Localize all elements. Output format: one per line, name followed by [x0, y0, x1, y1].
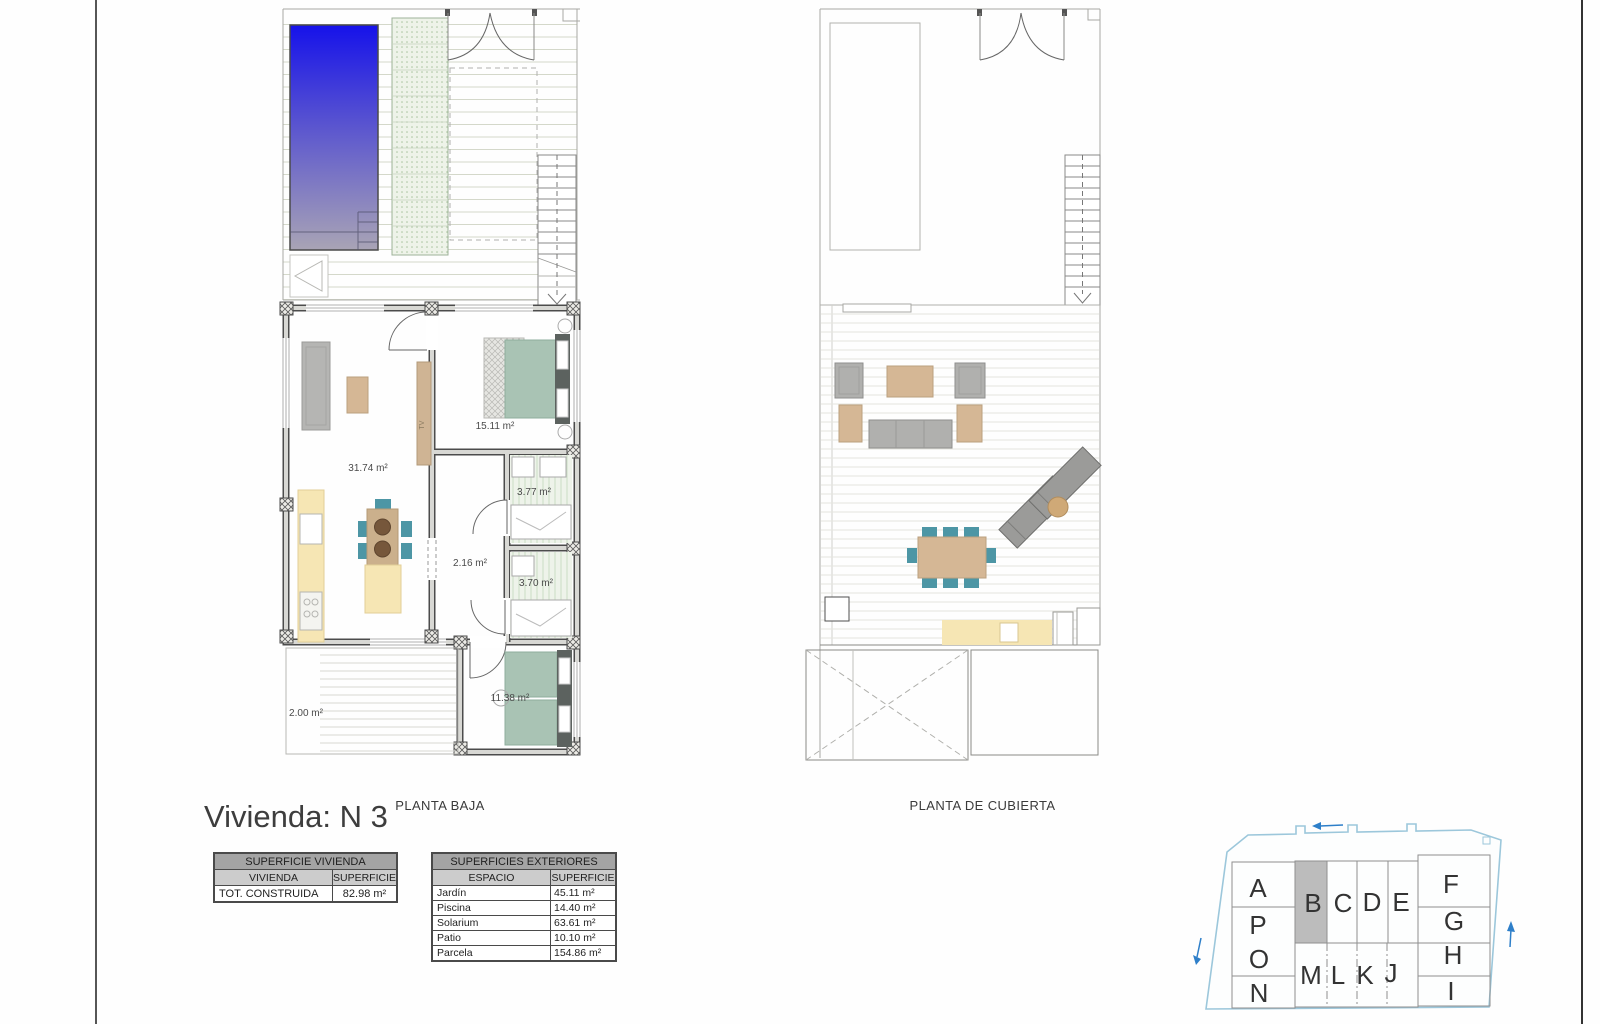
- sofa: [302, 342, 330, 430]
- row-label: Parcela: [433, 946, 551, 960]
- room-area-bedroom-main: 15.11 m²: [476, 421, 515, 432]
- side-table: [957, 405, 982, 442]
- light-symbol: [558, 425, 572, 439]
- site-unit-B: B: [1304, 888, 1321, 918]
- toilet: [540, 457, 566, 477]
- sink: [512, 457, 534, 477]
- single-bed: [505, 652, 557, 697]
- site-unit-I: I: [1447, 976, 1454, 1006]
- coffee-table: [887, 366, 933, 397]
- sink: [512, 556, 534, 576]
- column-header: SUPERFICIE: [333, 870, 396, 885]
- table-title: SUPERFICIES EXTERIORES: [433, 854, 615, 870]
- patio: [286, 648, 458, 754]
- row-value: 10.10 m²: [551, 931, 615, 945]
- table-row: Piscina 14.40 m²: [433, 901, 615, 916]
- floor-plan-planta-cubierta: [795, 0, 1115, 775]
- row-value: 154.86 m²: [551, 946, 615, 960]
- kitchen-counter: [298, 490, 324, 642]
- room-area-patio: 2.00 m²: [289, 708, 324, 719]
- table-row: Patio 10.10 m²: [433, 931, 615, 946]
- kitchen-island: [365, 565, 401, 613]
- site-unit-N: N: [1250, 978, 1269, 1008]
- site-unit-K: K: [1356, 960, 1374, 990]
- site-unit-M: M: [1300, 960, 1322, 990]
- room-area-bedroom-2: 11.38 m²: [491, 693, 530, 704]
- corner-marker: [290, 255, 328, 297]
- table-title: SUPERFICIE VIVIENDA: [215, 854, 396, 870]
- dining-set: [358, 499, 412, 565]
- site-unit-F: F: [1443, 869, 1459, 899]
- table-superficies-exteriores: SUPERFICIES EXTERIORES ESPACIO SUPERFICI…: [431, 852, 617, 962]
- bathtub: [511, 505, 571, 539]
- site-unit-L: L: [1331, 960, 1345, 990]
- arrow-icon: [1507, 921, 1515, 932]
- sheet-border-right: [1581, 0, 1583, 1024]
- outdoor-sofa: [869, 420, 952, 448]
- site-unit-P: P: [1249, 910, 1266, 940]
- row-value: 82.98 m²: [333, 886, 396, 901]
- site-key-plan: A P O N B C D E F G H I M L K J: [1180, 795, 1520, 1024]
- table-row: Solarium 63.61 m²: [433, 916, 615, 931]
- bathtub: [511, 600, 571, 636]
- roof-access-door: [977, 9, 1067, 60]
- site-unit-J: J: [1385, 958, 1398, 988]
- table-row: Parcela 154.86 m²: [433, 946, 615, 960]
- single-bed: [505, 700, 557, 745]
- side-table: [839, 405, 862, 442]
- page-title: Vivienda: N 3: [204, 799, 388, 835]
- svg-text:TV: TV: [419, 420, 426, 429]
- counter-sink: [1000, 623, 1018, 642]
- row-label: Solarium: [433, 916, 551, 930]
- plan-label-planta-cubierta: PLANTA DE CUBIERTA: [890, 798, 1075, 813]
- planter-box: [825, 597, 849, 621]
- site-unit-O: O: [1249, 944, 1269, 974]
- stairs: [538, 155, 576, 305]
- row-label: Patio: [433, 931, 551, 945]
- lower-roof-sections: [806, 650, 1098, 760]
- room-area-hall: 2.16 m²: [453, 558, 488, 569]
- round-table: [1048, 497, 1068, 517]
- kitchen-sink: [300, 514, 322, 544]
- bathroom-2: [510, 552, 572, 638]
- site-unit-C: C: [1334, 888, 1353, 918]
- column-header: SUPERFICIE: [551, 870, 615, 885]
- row-value: 45.11 m²: [551, 886, 615, 900]
- double-bed: [505, 340, 557, 418]
- row-value: 63.61 m²: [551, 916, 615, 930]
- sheet-border-left: [95, 0, 97, 1024]
- pool-void-outline: [830, 23, 920, 250]
- row-label: TOT. CONSTRUIDA: [215, 886, 333, 901]
- floor-plan-planta-baja: TV: [270, 0, 600, 775]
- room-area-bath-2: 3.70 m²: [519, 578, 554, 589]
- table-row: Jardín 45.11 m²: [433, 886, 615, 901]
- pool: [290, 25, 378, 250]
- column-header: ESPACIO: [433, 870, 551, 885]
- stairs: [1065, 155, 1100, 305]
- site-unit-H: H: [1444, 940, 1463, 970]
- light-symbol: [558, 319, 572, 333]
- row-value: 14.40 m²: [551, 901, 615, 915]
- bathroom-1: [510, 455, 572, 543]
- column-header: VIVIENDA: [215, 870, 333, 885]
- row-label: Piscina: [433, 901, 551, 915]
- site-unit-A: A: [1249, 873, 1267, 903]
- site-unit-G: G: [1444, 906, 1464, 936]
- site-unit-E: E: [1392, 887, 1409, 917]
- arrow-icon: [1312, 822, 1321, 830]
- planter-strip: [392, 18, 448, 255]
- site-unit-D: D: [1363, 887, 1382, 917]
- room-area-bath-1: 3.77 m²: [517, 487, 552, 498]
- room-area-living: 31.74 m²: [348, 463, 388, 474]
- table-superficie-vivienda: SUPERFICIE VIVIENDA VIVIENDA SUPERFICIE …: [213, 852, 398, 903]
- row-label: Jardín: [433, 886, 551, 900]
- stove: [300, 592, 322, 630]
- coffee-table: [347, 377, 368, 413]
- tv-unit: TV: [417, 362, 431, 465]
- table-row: TOT. CONSTRUIDA 82.98 m²: [215, 886, 396, 901]
